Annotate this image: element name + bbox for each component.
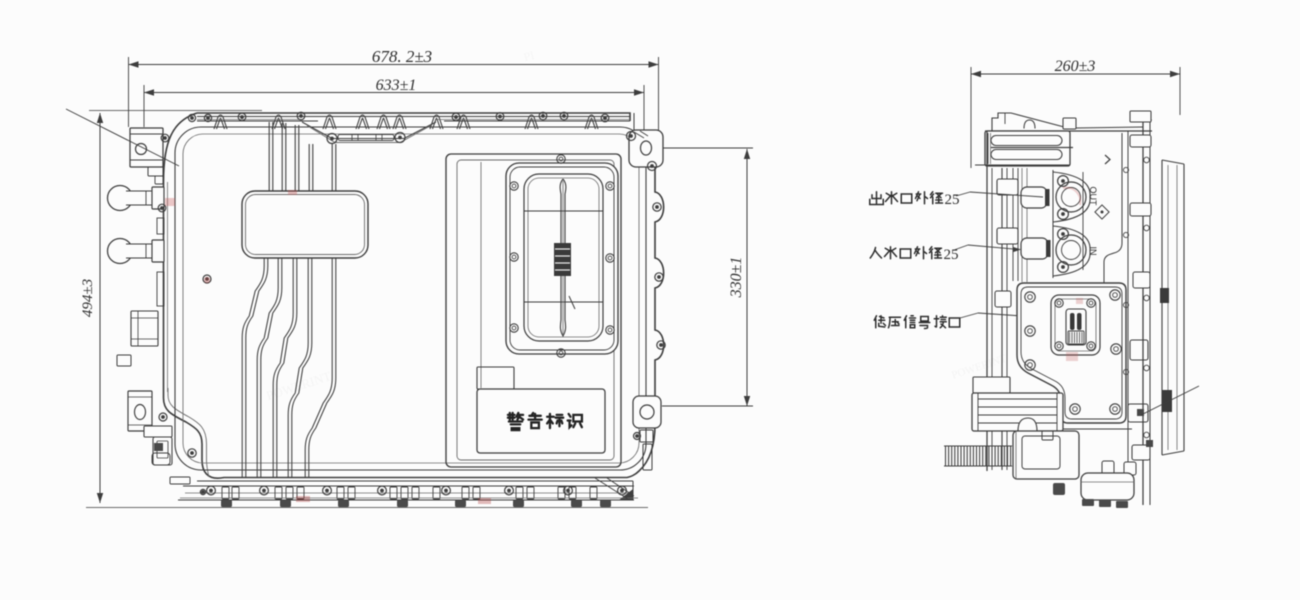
svg-text:678. 2±3: 678. 2±3	[372, 47, 432, 66]
svg-text:OUT: OUT	[1088, 187, 1098, 207]
svg-text:25: 25	[945, 192, 960, 208]
svg-text:494±3: 494±3	[80, 279, 96, 317]
svg-text:IN: IN	[1088, 247, 1098, 256]
svg-text:633±1: 633±1	[376, 77, 417, 94]
svg-text:330±1: 330±1	[728, 257, 745, 299]
svg-text:260±3: 260±3	[1055, 58, 1096, 75]
